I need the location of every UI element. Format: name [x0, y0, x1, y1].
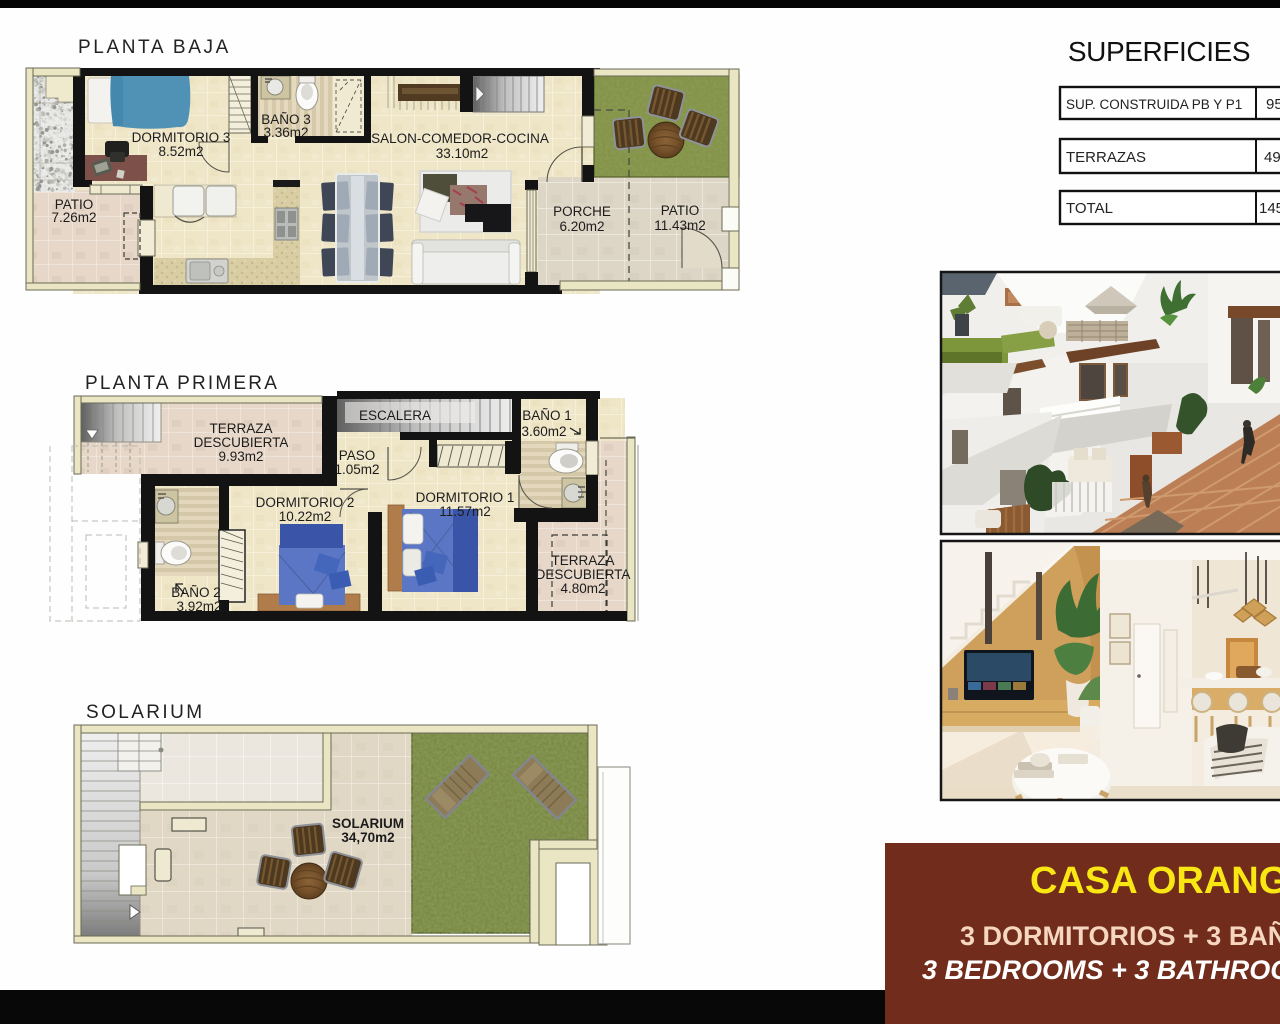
svg-text:3.36m2: 3.36m2 [263, 125, 308, 140]
svg-text:PLANTA BAJA: PLANTA BAJA [78, 37, 231, 58]
svg-text:DESCUBIERTA: DESCUBIERTA [536, 567, 631, 582]
svg-text:DESCUBIERTA: DESCUBIERTA [194, 435, 289, 450]
svg-text:3.60m2: 3.60m2 [521, 424, 566, 439]
svg-text:95,: 95, [1266, 96, 1280, 113]
svg-text:PORCHE: PORCHE [553, 204, 611, 219]
svg-text:BAÑO 1: BAÑO 1 [522, 408, 572, 423]
svg-text:11.57m2: 11.57m2 [439, 504, 491, 519]
svg-text:7.26m2: 7.26m2 [51, 210, 96, 225]
svg-text:CASA ORANGE: CASA ORANGE [1030, 860, 1280, 902]
svg-text:1.05m2: 1.05m2 [334, 462, 379, 477]
svg-text:DORMITORIO 3: DORMITORIO 3 [132, 130, 231, 145]
svg-text:9.93m2: 9.93m2 [218, 449, 263, 464]
svg-text:SOLARIUM: SOLARIUM [332, 816, 404, 831]
svg-text:SUP. CONSTRUIDA PB Y P1: SUP. CONSTRUIDA PB Y P1 [1066, 97, 1242, 112]
svg-text:PATIO: PATIO [661, 203, 700, 218]
svg-text:34,70m2: 34,70m2 [341, 830, 394, 845]
svg-text:TOTAL: TOTAL [1066, 200, 1113, 217]
svg-text:DORMITORIO 1: DORMITORIO 1 [416, 490, 515, 505]
svg-text:11.43m2: 11.43m2 [654, 218, 706, 233]
svg-text:SALON-COMEDOR-COCINA: SALON-COMEDOR-COCINA [371, 131, 549, 146]
svg-text:8.52m2: 8.52m2 [158, 144, 203, 159]
svg-text:PASO: PASO [339, 448, 376, 463]
svg-text:TERRAZA: TERRAZA [551, 553, 614, 568]
svg-text:3.92m2: 3.92m2 [176, 599, 221, 614]
svg-text:3 BEDROOMS + 3 BATHROOMS: 3 BEDROOMS + 3 BATHROOMS [922, 955, 1280, 985]
svg-text:TERRAZA: TERRAZA [209, 421, 272, 436]
svg-text:33.10m2: 33.10m2 [436, 146, 489, 161]
svg-text:49,: 49, [1264, 149, 1280, 166]
svg-text:4.80m2: 4.80m2 [560, 581, 605, 596]
svg-text:ESCALERA: ESCALERA [359, 408, 431, 423]
svg-text:6.20m2: 6.20m2 [559, 219, 604, 234]
svg-text:PLANTA PRIMERA: PLANTA PRIMERA [85, 373, 279, 394]
svg-text:3 DORMITORIOS + 3 BAÑOS: 3 DORMITORIOS + 3 BAÑOS [960, 920, 1280, 951]
svg-text:10.22m2: 10.22m2 [279, 509, 332, 524]
svg-text:145,: 145, [1259, 200, 1280, 217]
svg-text:DORMITORIO 2: DORMITORIO 2 [256, 495, 355, 510]
svg-text:SOLARIUM: SOLARIUM [86, 702, 204, 723]
svg-text:TERRAZAS: TERRAZAS [1066, 149, 1146, 166]
svg-text:SUPERFICIES: SUPERFICIES [1068, 36, 1250, 67]
